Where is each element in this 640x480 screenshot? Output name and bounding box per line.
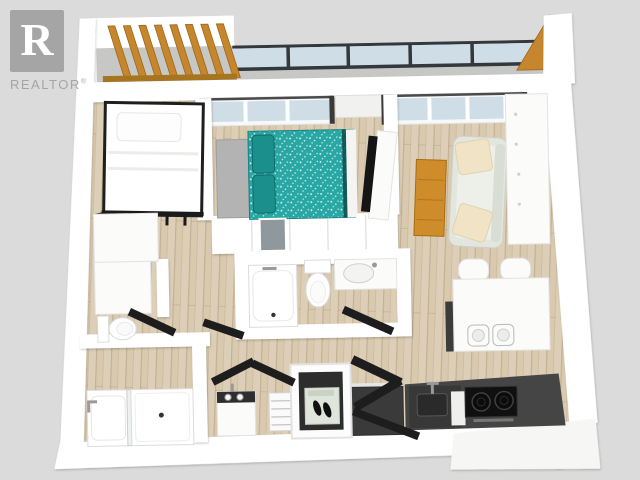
primary-bed	[248, 129, 358, 219]
window-jamb	[329, 96, 335, 124]
registered-mark: ®	[81, 79, 86, 86]
balcony	[92, 10, 551, 86]
floor-plan-canvas: R REALTOR®	[0, 0, 640, 480]
realtor-logo-letter: R	[20, 17, 53, 63]
bed-pillow	[117, 113, 181, 142]
bed-sheet-edge	[346, 129, 358, 217]
bathroom2-right-wall	[192, 338, 208, 442]
bedroom-bench	[216, 139, 249, 218]
mat-items	[308, 390, 334, 396]
media-cabinet	[505, 94, 550, 245]
realtor-watermark: R REALTOR®	[10, 10, 96, 92]
living-window-glass	[390, 96, 520, 120]
washer-knob	[237, 394, 244, 401]
plan-tilt-group	[46, 9, 601, 479]
right-upper-wall	[542, 13, 575, 88]
bedroom-window-glass	[207, 100, 329, 122]
powder-room-wall	[156, 259, 169, 317]
realtor-logo-icon: R	[10, 10, 64, 72]
toilet-tank	[304, 260, 330, 273]
realtor-logo-text: REALTOR®	[10, 77, 96, 92]
bed-pillow-teal	[252, 135, 275, 173]
realtor-brand-text: REALTOR	[10, 77, 81, 92]
tub-faucet	[263, 267, 277, 270]
plate-center	[497, 329, 509, 341]
bed-pillow-teal	[253, 175, 276, 213]
dresser-upper	[93, 213, 158, 262]
floor-plan-render	[0, 0, 640, 480]
cream-pillow	[454, 138, 493, 175]
bathroom2	[87, 388, 194, 446]
sink-faucet	[431, 384, 434, 394]
dresser-lower	[94, 261, 151, 314]
vanity-sink	[343, 263, 373, 283]
powder-room	[97, 316, 136, 343]
railing-post	[346, 44, 350, 68]
wardrobe-seam	[252, 217, 253, 251]
wardrobe-seam	[366, 215, 367, 249]
washer-control-panel	[217, 391, 255, 403]
window-mullion	[427, 97, 431, 121]
plate-center	[472, 329, 484, 341]
wardrobe-seam	[328, 216, 329, 250]
toilet2-tank	[97, 316, 108, 342]
railing-post	[408, 43, 412, 67]
railing-post	[286, 46, 290, 70]
burner	[495, 391, 513, 409]
shower-glass-panel	[260, 219, 287, 251]
window-mullion	[243, 100, 247, 122]
balcony-door	[335, 95, 383, 118]
media-cabinet-body	[505, 94, 550, 245]
burner	[472, 393, 490, 411]
window-mullion	[285, 100, 289, 122]
wardrobe-seam	[290, 217, 291, 251]
tub2-faucet	[87, 400, 97, 403]
coffee-table-top	[414, 159, 447, 236]
dining-chair	[500, 258, 530, 281]
window-mullion	[465, 96, 469, 120]
rail-post	[165, 214, 168, 225]
kitchen-sink	[417, 394, 447, 417]
laundry-faucet	[231, 384, 234, 392]
dishwasher-front	[451, 391, 466, 425]
toilet-seat	[310, 281, 325, 303]
washer-knob	[225, 394, 232, 401]
coffee-table	[414, 159, 447, 236]
railing-post	[470, 42, 474, 66]
dining-chair	[458, 259, 488, 282]
entry-closet	[290, 363, 351, 438]
sofa	[448, 136, 507, 249]
rail-post	[183, 215, 186, 226]
toilet2-seat	[117, 322, 133, 335]
tub2-spout	[87, 403, 90, 412]
sink-faucet-arm	[427, 382, 439, 385]
